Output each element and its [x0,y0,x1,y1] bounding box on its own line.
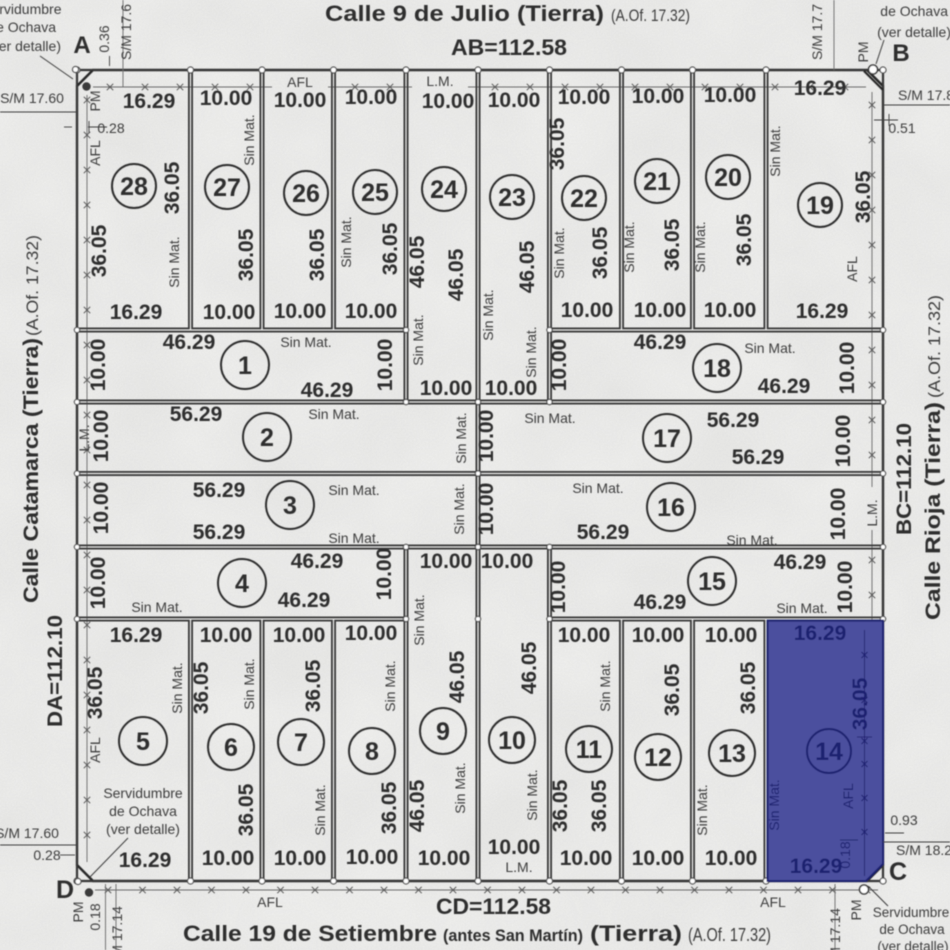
svg-text:L.M.: L.M. [864,499,880,526]
svg-text:S/M 17.60: S/M 17.60 [0,825,59,841]
svg-text:Sin Mat.: Sin Mat. [451,483,467,534]
svg-text:PM: PM [70,902,86,923]
svg-text:Sin Mat.: Sin Mat. [166,236,182,287]
svg-text:Sin Mat.: Sin Mat. [572,480,623,496]
svg-text:56.29: 56.29 [193,521,246,544]
svg-text:AFL: AFL [287,74,313,90]
svg-text:10.00: 10.00 [834,561,857,614]
svg-text:CD=112.58: CD=112.58 [436,894,551,919]
svg-text:5: 5 [136,728,150,756]
svg-text:0.28: 0.28 [33,847,60,863]
svg-text:PM: PM [848,900,864,921]
svg-text:AFL: AFL [87,737,103,763]
svg-text:12: 12 [644,744,672,772]
svg-text:A: A [73,32,90,59]
svg-text:16.29: 16.29 [110,301,163,324]
svg-text:AFL: AFL [844,256,860,282]
svg-text:10.00: 10.00 [704,299,757,322]
svg-text:46.05: 46.05 [518,641,541,694]
svg-text:(ver detalle): (ver detalle) [0,38,61,54]
svg-text:Servidumbre: Servidumbre [103,785,183,801]
svg-text:56.29: 56.29 [732,446,785,469]
svg-text:16.29: 16.29 [794,622,847,645]
svg-text:10.00: 10.00 [87,557,110,610]
svg-text:Sin Mat.: Sin Mat. [776,600,827,616]
svg-text:(ver detalle): (ver detalle) [877,24,950,40]
svg-text:10.00: 10.00 [481,550,534,573]
svg-text:26: 26 [292,180,320,208]
svg-text:PM: PM [855,42,871,63]
svg-text:PM: PM [87,91,103,112]
svg-text:46.29: 46.29 [291,550,344,573]
svg-text:4: 4 [235,570,249,598]
svg-text:46.29: 46.29 [163,331,216,354]
svg-text:S/M 17.7: S/M 17.7 [809,4,825,60]
svg-text:28: 28 [120,173,148,201]
svg-text:de Ochava: de Ochava [0,19,56,35]
svg-text:16.29: 16.29 [123,90,176,113]
svg-text:16.29: 16.29 [790,855,843,878]
svg-text:S/M 17.60: S/M 17.60 [0,90,64,106]
svg-text:de Ochava: de Ochava [880,3,948,19]
svg-text:AFL: AFL [257,894,283,910]
svg-text:Sin Mat.: Sin Mat. [312,784,328,835]
svg-text:10: 10 [498,727,526,755]
svg-text:6: 6 [224,734,238,762]
svg-text:22: 22 [570,185,598,213]
svg-text:D: D [56,876,74,904]
svg-text:AFL: AFL [760,894,786,910]
svg-text:0.28: 0.28 [97,120,124,136]
svg-text:10.00: 10.00 [704,84,757,107]
svg-text:46.29: 46.29 [774,551,827,574]
svg-text:10.00: 10.00 [274,847,327,870]
svg-text:0.36: 0.36 [96,25,112,52]
svg-text:Sin Mat.: Sin Mat. [597,660,613,711]
svg-text:10.00: 10.00 [632,85,685,108]
svg-text:Sin Mat.: Sin Mat. [131,599,182,615]
svg-text:S/M 18.2: S/M 18.2 [896,842,950,858]
svg-text:3: 3 [283,492,297,520]
svg-text:17: 17 [653,425,681,453]
svg-text:11: 11 [576,736,603,764]
svg-text:10.00: 10.00 [488,836,541,859]
svg-text:20: 20 [714,164,742,192]
svg-text:L.M.: L.M. [505,859,532,875]
svg-text:10.00: 10.00 [203,301,256,324]
svg-text:10.00: 10.00 [202,847,255,870]
svg-text:AFL: AFL [840,783,856,809]
svg-text:10.00: 10.00 [634,299,687,322]
svg-text:46.29: 46.29 [634,331,687,354]
svg-text:10.00: 10.00 [827,488,850,541]
svg-text:(ver detalle): (ver detalle) [106,821,180,837]
svg-text:46.05: 46.05 [406,779,429,832]
svg-text:10.00: 10.00 [475,410,498,463]
svg-text:Sin Mat.: Sin Mat. [766,779,782,830]
svg-text:36.05: 36.05 [84,666,107,719]
svg-text:10.00: 10.00 [558,624,611,647]
svg-text:36.05: 36.05 [849,677,872,730]
svg-text:Sin Mat.: Sin Mat. [453,412,469,463]
svg-text:7: 7 [294,729,308,757]
svg-text:16.29: 16.29 [794,77,847,100]
svg-text:10.00: 10.00 [488,89,541,112]
svg-text:10.00: 10.00 [422,90,475,113]
svg-text:10.00: 10.00 [200,87,253,110]
svg-text:9: 9 [436,718,450,746]
svg-text:13: 13 [718,740,746,768]
svg-text:L.M.: L.M. [426,73,453,89]
svg-text:Sin Mat.: Sin Mat. [280,334,331,350]
svg-text:0.18: 0.18 [837,841,853,868]
svg-text:36.05: 36.05 [235,783,258,836]
svg-text:10.00: 10.00 [87,339,110,392]
svg-text:10.00: 10.00 [558,86,611,109]
svg-text:Sin Mat.: Sin Mat. [694,784,710,835]
svg-text:46.29: 46.29 [301,379,354,402]
svg-text:36.05: 36.05 [661,663,684,716]
svg-text:Sin Mat.: Sin Mat. [621,221,637,272]
svg-text:15: 15 [698,568,726,596]
svg-text:16: 16 [657,494,685,522]
svg-text:1: 1 [238,352,252,380]
svg-text:0.93: 0.93 [890,812,917,828]
svg-text:10.00: 10.00 [373,548,396,601]
svg-text:36.05: 36.05 [733,213,756,266]
svg-text:10.00: 10.00 [548,339,571,392]
svg-text:10.00: 10.00 [705,847,758,870]
svg-text:10.00: 10.00 [475,483,498,536]
svg-text:S/M 17.8: S/M 17.8 [898,87,950,103]
svg-text:10.00: 10.00 [632,847,685,870]
svg-text:Sin Mat.: Sin Mat. [726,532,777,548]
svg-text:46.05: 46.05 [445,248,468,301]
svg-text:46.05: 46.05 [406,235,429,288]
svg-text:46.05: 46.05 [516,240,539,293]
svg-text:10.00: 10.00 [836,342,859,395]
svg-text:0.51: 0.51 [888,120,915,136]
svg-text:36.05: 36.05 [546,117,569,170]
svg-text:de Ochava: de Ochava [109,803,177,819]
svg-text:Sin Mat.: Sin Mat. [523,326,539,377]
svg-text:36.05: 36.05 [306,228,329,281]
svg-text:AFL: AFL [87,140,103,166]
svg-text:S/M 17.6: S/M 17.6 [118,4,134,60]
svg-text:10.00: 10.00 [346,846,399,869]
svg-text:Calle Rioja (Tierra) (A.Of. 17: Calle Rioja (Tierra) (A.Of. 17.32) [922,295,945,620]
svg-text:36.05: 36.05 [190,661,213,714]
svg-text:10.00: 10.00 [420,377,473,400]
svg-text:46.29: 46.29 [278,589,331,612]
svg-text:24: 24 [430,176,458,204]
svg-text:10.00: 10.00 [345,622,398,645]
svg-text:36.05: 36.05 [88,224,111,277]
svg-text:36.05: 36.05 [737,661,760,714]
svg-text:Servidumbre: Servidumbre [0,1,62,17]
svg-text:10.00: 10.00 [547,561,570,614]
svg-text:10.00: 10.00 [560,847,613,870]
svg-text:Sin Mat.: Sin Mat. [692,221,708,272]
svg-text:19: 19 [806,192,834,220]
svg-text:56.29: 56.29 [707,409,760,432]
svg-text:10.00: 10.00 [90,410,113,463]
svg-text:AB=112.58: AB=112.58 [451,35,567,60]
svg-text:Sin Mat.: Sin Mat. [241,114,257,165]
svg-text:Sin Mat.: Sin Mat. [308,406,359,422]
svg-text:16.29: 16.29 [119,849,172,872]
svg-text:10.00: 10.00 [200,624,253,647]
svg-text:23: 23 [498,184,526,212]
svg-text:36.05: 36.05 [302,659,325,712]
svg-text:BC=112.10: BC=112.10 [893,423,916,535]
svg-text:Sin Mat.: Sin Mat. [328,482,379,498]
svg-text:46.05: 46.05 [446,650,469,703]
svg-text:DA=112.10: DA=112.10 [44,615,67,727]
svg-text:Sin Mat.: Sin Mat. [241,658,257,709]
svg-text:36.05: 36.05 [379,222,402,275]
svg-text:Sin Mat.: Sin Mat. [524,769,540,820]
svg-text:Sin Mat.: Sin Mat. [410,314,426,365]
svg-text:10.00: 10.00 [561,299,614,322]
svg-text:36.05: 36.05 [161,161,184,214]
svg-text:de Ochava: de Ochava [879,922,945,937]
svg-text:8: 8 [365,738,379,766]
svg-text:56.29: 56.29 [193,479,246,502]
svg-text:21: 21 [643,168,671,196]
svg-text:Sin Mat.: Sin Mat. [411,594,427,645]
svg-text:27: 27 [213,174,241,202]
svg-text:Sin Mat.: Sin Mat. [452,762,468,813]
svg-text:36.05: 36.05 [378,781,401,834]
svg-text:Sin Mat.: Sin Mat. [480,289,496,340]
svg-text:10.00: 10.00 [274,89,327,112]
svg-text:Sin Mat.: Sin Mat. [382,660,398,711]
svg-text:14: 14 [815,738,843,766]
svg-text:B: B [892,40,909,67]
svg-text:16.29: 16.29 [796,300,849,323]
svg-text:36.05: 36.05 [852,170,875,223]
svg-text:Sin Mat.: Sin Mat. [524,410,575,426]
svg-text:Sin Mat.: Sin Mat. [328,530,379,546]
svg-text:S/M 17.14: S/M 17.14 [109,906,125,950]
svg-text:36.05: 36.05 [549,779,572,832]
svg-text:36.05: 36.05 [589,226,612,279]
svg-text:10.00: 10.00 [832,415,855,468]
svg-text:10.00: 10.00 [90,482,113,535]
svg-text:10.00: 10.00 [274,300,327,323]
svg-text:10.00: 10.00 [345,86,398,109]
svg-text:10.00: 10.00 [420,550,473,573]
svg-text:10.00: 10.00 [374,339,397,392]
svg-text:0.18: 0.18 [87,903,103,930]
svg-text:Sin Mat.: Sin Mat. [767,125,783,176]
svg-text:10.00: 10.00 [418,847,471,870]
svg-text:10.00: 10.00 [705,624,758,647]
svg-text:Sin Mat.: Sin Mat. [744,340,795,356]
svg-text:36.05: 36.05 [588,779,611,832]
svg-text:10.00: 10.00 [632,624,685,647]
svg-text:46.29: 46.29 [758,375,811,398]
svg-text:10.00: 10.00 [485,377,538,400]
svg-text:10.00: 10.00 [273,624,326,647]
svg-text:Servidumbre: Servidumbre [873,905,950,920]
svg-text:10.00: 10.00 [345,300,398,323]
svg-text:36.05: 36.05 [235,228,258,281]
svg-text:46.29: 46.29 [634,591,687,614]
svg-text:2: 2 [260,424,274,452]
svg-text:Sin Mat.: Sin Mat. [169,662,185,713]
svg-text:18: 18 [703,355,731,383]
svg-text:56.29: 56.29 [170,403,223,426]
svg-text:C: C [889,858,907,886]
svg-text:Sin Mat.: Sin Mat. [338,216,354,267]
svg-text:Calle Catamarca (Tierra) (A.Of: Calle Catamarca (Tierra) (A.Of. 17.32) [20,235,43,603]
svg-text:36.05: 36.05 [661,218,684,271]
svg-text:16.29: 16.29 [110,624,163,647]
svg-text:56.29: 56.29 [577,521,630,544]
svg-text:Sin Mat.: Sin Mat. [551,227,567,278]
svg-text:(ver detalle): (ver detalle) [877,939,948,950]
svg-text:S/M 17.14: S/M 17.14 [827,908,843,950]
svg-text:25: 25 [361,179,389,207]
